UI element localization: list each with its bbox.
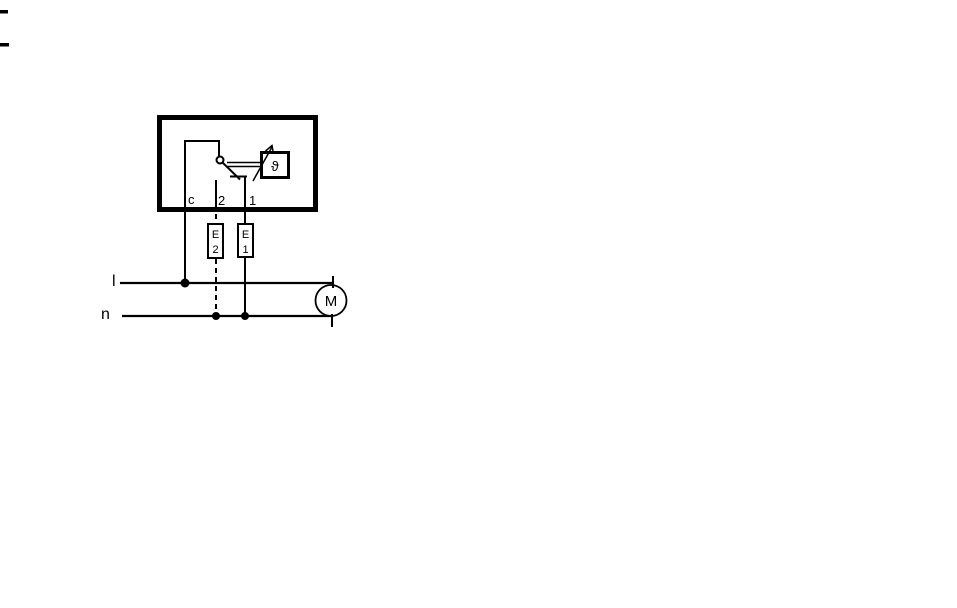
- element-e2-label-line1: E: [212, 229, 219, 241]
- element-e1-label-line2: 1: [242, 244, 248, 256]
- junction-dot-c-l: [181, 279, 190, 288]
- line-n-label: n: [101, 306, 110, 323]
- junction-dot-e2-n: [212, 312, 220, 320]
- schematic-page: ϑ c 2 1 E 2 E 1 l n M: [0, 0, 957, 608]
- page-mark-top: [0, 10, 8, 14]
- switch-pivot: [217, 157, 224, 164]
- page-mark-bottom: [0, 43, 9, 47]
- device-enclosure-outline: [160, 118, 316, 210]
- terminal-2-label: 2: [218, 193, 225, 208]
- line-l-label: l: [112, 273, 116, 290]
- terminal-c-label: c: [188, 192, 195, 207]
- motor-label: M: [325, 293, 338, 310]
- element-e2-label-line2: 2: [212, 244, 218, 256]
- wiring-diagram: ϑ c 2 1 E 2 E 1 l n M: [0, 0, 957, 608]
- element-e1-label-line1: E: [242, 229, 249, 241]
- terminal-1-label: 1: [249, 193, 256, 208]
- junction-dot-e1-n: [241, 312, 249, 320]
- thermostat-symbol: ϑ: [271, 158, 279, 174]
